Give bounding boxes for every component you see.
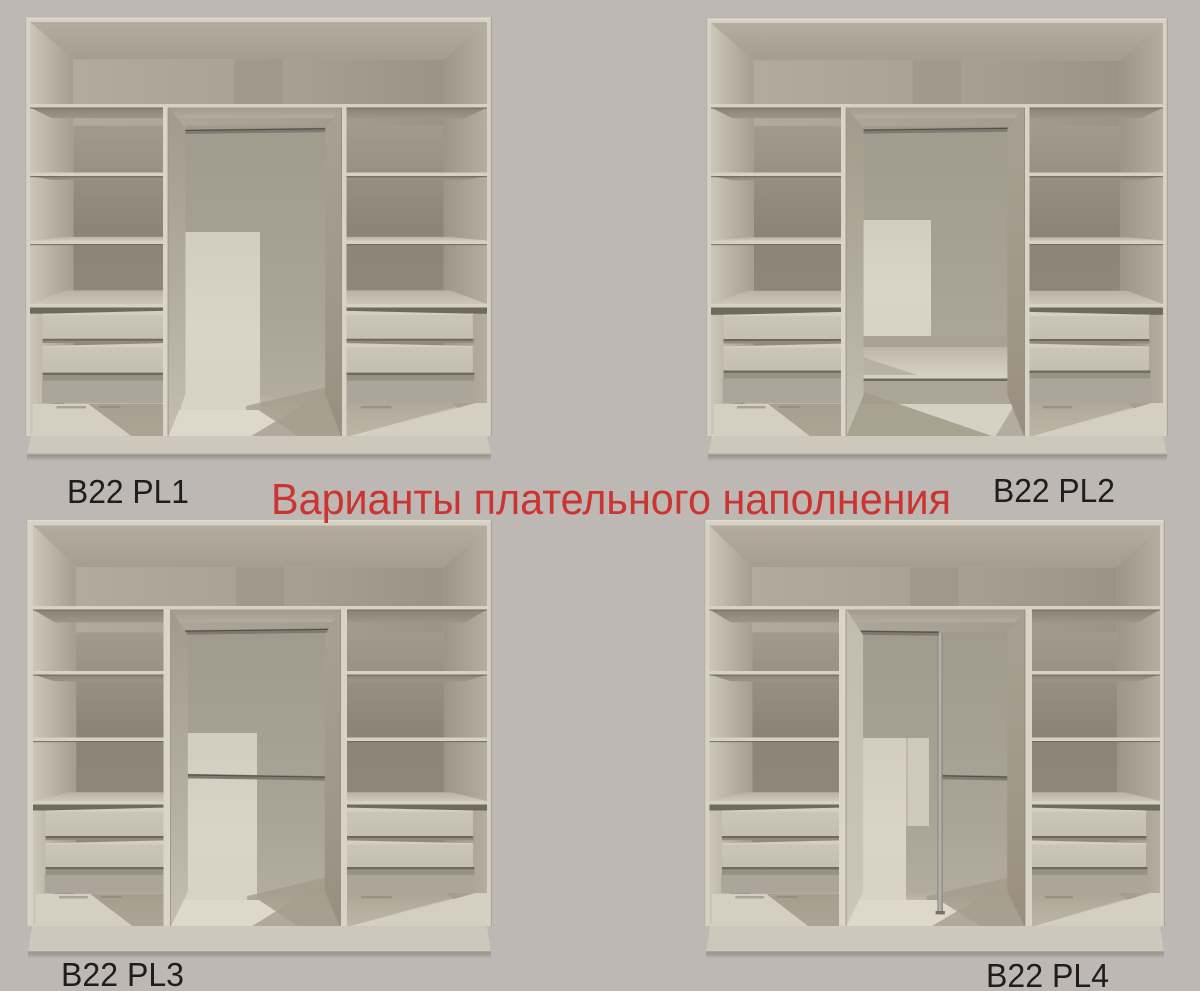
svg-text:B22 PL1: B22 PL1 <box>67 474 189 511</box>
svg-text:B22 PL2: B22 PL2 <box>993 473 1115 510</box>
svg-text:B22 PL3: B22 PL3 <box>61 957 184 991</box>
svg-text:Варианты плательного наполнени: Варианты плательного наполнения <box>271 475 951 524</box>
svg-text:B22 PL4: B22 PL4 <box>986 958 1109 991</box>
